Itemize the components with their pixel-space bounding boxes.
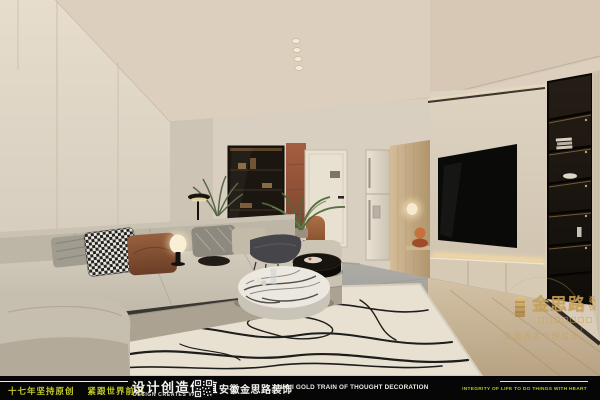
watermark-brand-name: 金思路 (532, 295, 586, 315)
shelving-unit (548, 74, 592, 304)
slogan-originality: 十七年坚持原创 (8, 385, 75, 397)
divider-line-right (500, 381, 588, 382)
company-name-en: ANHUI GOLD TRAIN OF THOUGHT DECORATION (273, 384, 428, 391)
patterned-pillow (191, 225, 237, 258)
watermark-subline: 安徽肯古千想设计 (504, 331, 580, 342)
fridge (366, 150, 390, 260)
wood-column (390, 140, 434, 278)
armrest-tray (198, 256, 230, 266)
slogan-right-en: INTEGRITY OF LIFE TO DO THINGS WITH HEAR… (462, 387, 587, 392)
watermark-logo: 金思路 装饰 (511, 295, 596, 319)
watermark-letter-boxes (538, 317, 592, 323)
room-render (0, 0, 600, 376)
watermark-brand-tag: 装饰 (589, 297, 596, 313)
coffee-table-marble (238, 266, 330, 320)
slogans-left: 十七年坚持原创 紧跟世界前沿 (8, 385, 145, 397)
tv-wall (428, 84, 545, 312)
gold-column-logo-icon (511, 295, 529, 319)
qr-code-icon (194, 379, 213, 398)
divider-line-left (0, 381, 128, 382)
screenshot-root: 金思路 装饰 安徽肯古千想设计 十七年坚持原创 紧跟世界前沿 设计创造价值 DE… (0, 0, 600, 400)
bowl-icon (563, 173, 577, 179)
books-icon (556, 137, 573, 149)
brand-bar: 十七年坚持原创 紧跟世界前沿 设计创造价值 DESIGN CREATES VAL… (0, 376, 600, 400)
wall-sconce-icon (406, 203, 418, 216)
vase-icon (577, 227, 582, 237)
glass-vase-icon (270, 268, 277, 284)
decor-object-icon (254, 277, 262, 285)
